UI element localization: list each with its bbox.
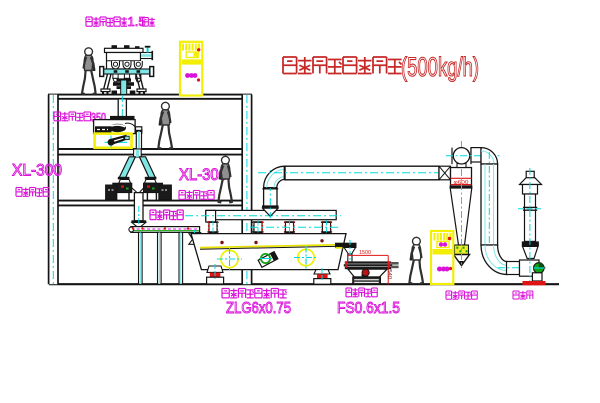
svg-text:1500: 1500 — [359, 250, 371, 256]
svg-text:540: 540 — [386, 269, 392, 279]
svg-text:XL-300: XL-300 — [12, 161, 62, 180]
svg-text:(500kg/h): (500kg/h) — [401, 52, 479, 82]
svg-text:FS0.6x1.5: FS0.6x1.5 — [337, 300, 400, 317]
svg-text:ZLG6x0.75: ZLG6x0.75 — [226, 300, 291, 317]
